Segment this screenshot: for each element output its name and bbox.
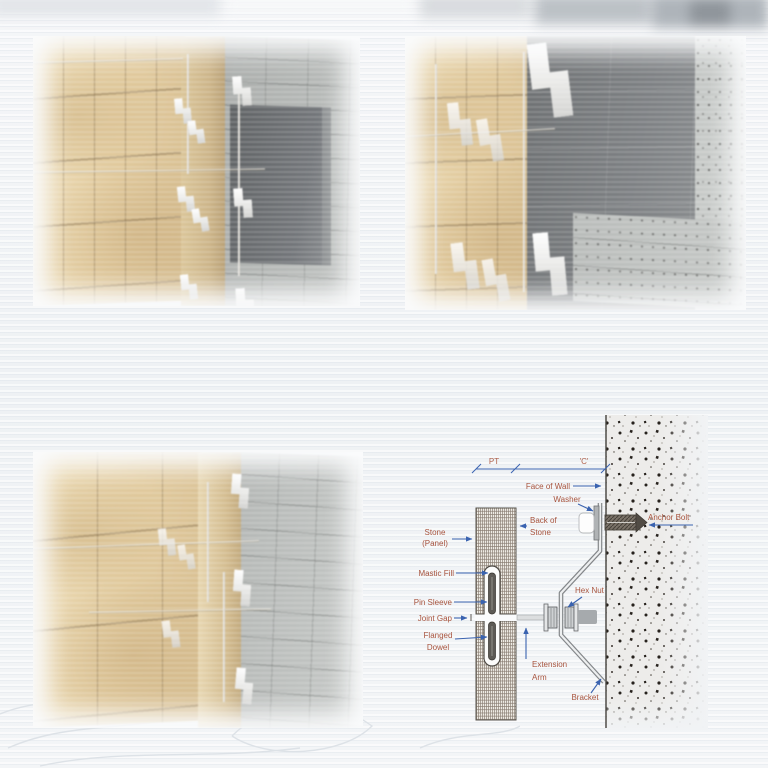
arm-washer-left [544,604,548,631]
label-stone-panel-1: Stone [425,528,446,537]
label-flanged-dowel-2: Dowel [427,643,449,652]
label-face-of-wall: Face of Wall [526,482,570,491]
dim-label-pt: PT [489,457,499,466]
extension-arm-assembly [544,604,597,631]
washer-plate [594,506,599,540]
label-washer: Washer [553,495,581,504]
blur-patch [0,0,220,16]
dim-label-c: 'C' [580,457,589,466]
blur-patch [535,0,650,24]
figure-cladding-iso-top-right [405,36,746,310]
label-stone-panel-2: (Panel) [422,539,448,548]
label-back-of-stone-1: Back of [530,516,557,525]
label-anchor-bolt: Anchor Bolt [648,513,690,522]
page-top-blur-band [0,0,768,38]
stone-panel-section [471,508,518,720]
arm-rod-end [578,610,597,624]
extension-arm-rod [517,615,545,620]
soft-edge-fade [405,36,746,310]
figure-cladding-iso-bottom-left [33,452,363,728]
label-mastic-fill: Mastic Fill [418,569,454,578]
joint-gap-band [475,615,518,622]
label-flanged-dowel-1: Flanged [424,631,453,640]
concrete-wall-section [606,415,708,730]
label-hex-nut: Hex Nut [575,586,605,595]
catalog-page: { "colors": { "label_red": "#a8543e", "a… [0,0,768,768]
arm-washer-right [574,604,578,631]
figure-cladding-iso-top-left [33,36,360,306]
label-joint-gap: Joint Gap [418,614,453,623]
label-pin-sleeve: Pin Sleeve [414,598,453,607]
label-extension-arm-1: Extension [532,660,567,669]
blur-patch [225,0,415,10]
soft-edge-fade [33,452,363,728]
blur-patch [690,0,730,26]
label-extension-arm-2: Arm [532,673,547,682]
hex-nut-left [548,607,557,628]
blur-patch [420,0,530,18]
anchor-detail-diagram: PT 'C' [408,402,760,758]
soft-edge-fade [33,36,360,306]
label-back-of-stone-2: Stone [530,528,551,537]
label-bracket: Bracket [571,693,599,702]
bolt-head [579,513,594,533]
hex-nut-right [565,607,574,628]
